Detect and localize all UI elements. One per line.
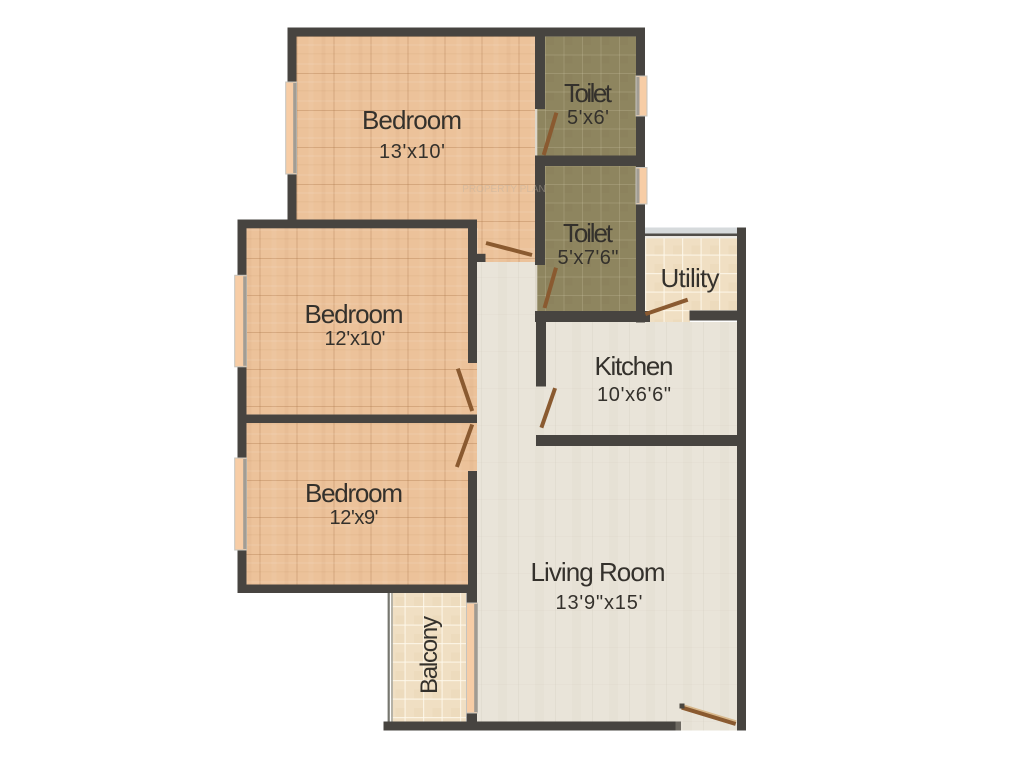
svg-text:Bedroom: Bedroom: [362, 105, 462, 135]
svg-text:5'x7'6": 5'x7'6": [558, 247, 619, 269]
svg-text:Toilet: Toilet: [564, 78, 613, 108]
svg-text:12'x10': 12'x10': [325, 328, 386, 350]
svg-text:Bedroom: Bedroom: [305, 299, 404, 329]
svg-text:PROPERTY PLAN: PROPERTY PLAN: [462, 184, 546, 195]
svg-text:13'x10': 13'x10': [379, 141, 445, 163]
svg-text:12'x9': 12'x9': [330, 507, 379, 529]
svg-text:13'9"x15': 13'9"x15': [556, 592, 643, 614]
svg-text:5'x6': 5'x6': [567, 107, 609, 129]
svg-text:Kitchen: Kitchen: [595, 351, 674, 381]
svg-text:10'x6'6": 10'x6'6": [597, 384, 671, 406]
svg-text:Bedroom: Bedroom: [305, 478, 403, 508]
svg-text:Toilet: Toilet: [563, 218, 614, 248]
svg-text:Utility: Utility: [661, 263, 720, 293]
svg-text:Balcony: Balcony: [416, 616, 443, 694]
svg-text:Living Room: Living Room: [531, 557, 666, 587]
